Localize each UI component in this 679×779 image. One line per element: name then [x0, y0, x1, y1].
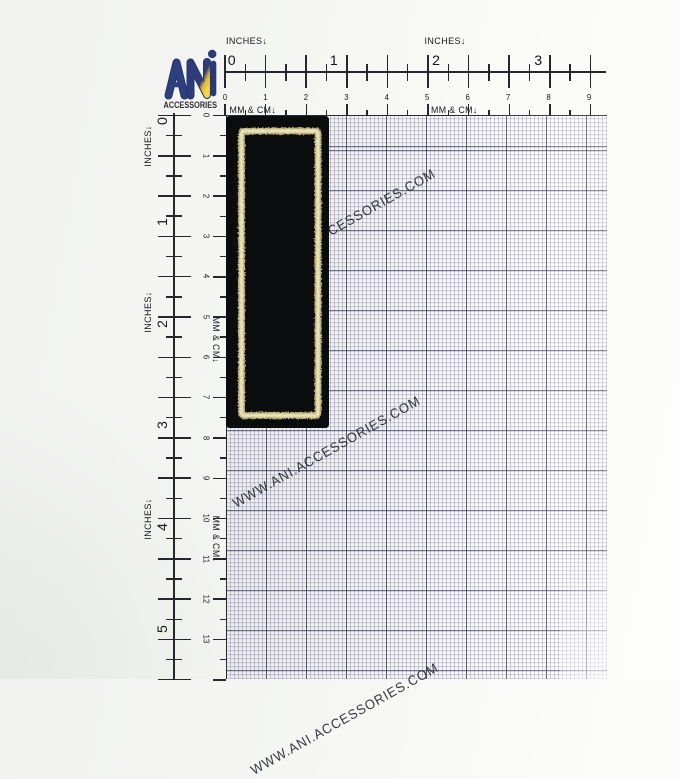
svg-text:ACCESSORIES: ACCESSORIES	[164, 99, 218, 110]
